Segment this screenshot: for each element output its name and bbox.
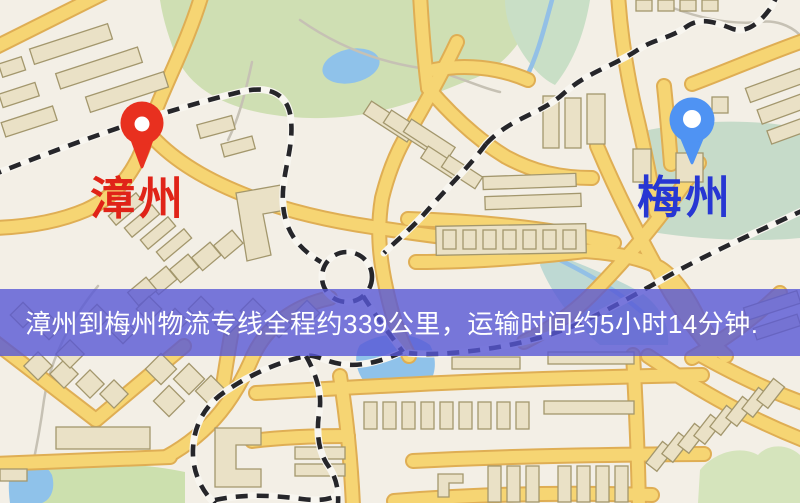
route-banner: 漳州到梅州物流专线全程约339公里，运输时间约5小时14分钟. xyxy=(0,289,800,356)
origin-city-label: 漳州 xyxy=(90,177,186,222)
map-screenshot: 漳州 梅州 漳州到梅州物流专线全程约339公里，运输时间约5小时14分钟. xyxy=(0,0,800,503)
destination-city-label: 梅州 xyxy=(637,176,733,221)
route-banner-text: 漳州到梅州物流专线全程约339公里，运输时间约5小时14分钟. xyxy=(25,304,758,341)
map-image xyxy=(0,0,800,503)
